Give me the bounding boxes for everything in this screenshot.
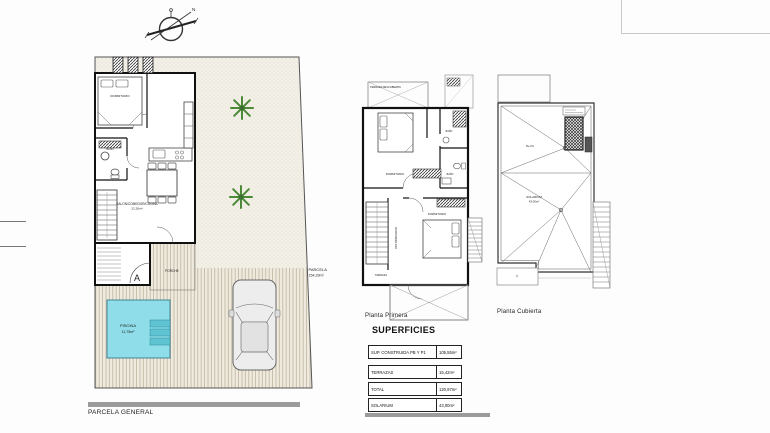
superficies-row: TOTAL 120,97m²: [368, 382, 462, 396]
stairs: [97, 190, 117, 240]
wardrobe: [437, 199, 465, 207]
roof-plan-caption: Planta Cubierta: [497, 309, 541, 315]
margin-tick: [0, 221, 26, 222]
garden-plant: [230, 186, 252, 208]
ground-floor-plan: DORMITORIO BAÑO: [85, 50, 330, 395]
living-room-label: SALON/COMEDOR/COCINA: [116, 202, 158, 206]
table-underline-bar: [365, 413, 490, 417]
superficies-row-value: 15,42m²: [436, 366, 461, 378]
terraza-label: TERRAZA: [375, 273, 387, 277]
bedroom1-label: DORMITORIO: [386, 172, 405, 176]
lower-annex: [497, 268, 538, 285]
chimney: [585, 137, 592, 152]
first-floor-plan: TERRAZA DESCUBIERTA: [353, 70, 498, 325]
stairs: [366, 202, 388, 264]
title-block-frame-line: [621, 33, 770, 34]
dining-table: [147, 163, 177, 203]
hall-label: DISTRIBUIDOR: [394, 226, 398, 248]
superficies-row-value: 120,97m²: [436, 383, 461, 395]
bulkhead-note-box: [563, 107, 585, 115]
margin-tick: [0, 246, 26, 247]
superficies-title: SUPERFICIES: [372, 325, 435, 335]
fence-posts: [113, 57, 153, 73]
solarium-label: SOLARIUM: [526, 195, 542, 199]
pool: [107, 300, 170, 358]
wardrobe: [413, 169, 441, 178]
ground-caption-bar: [88, 402, 300, 407]
compass-north-label: N: [192, 7, 195, 12]
stair-bulkhead: [565, 117, 583, 150]
bedroom-furniture: [98, 77, 142, 125]
superficies-row: SOLARIUM 43,00m²: [368, 398, 462, 412]
superficies-row-label: SOLARIUM: [369, 399, 436, 411]
exterior-stair: [468, 218, 482, 262]
ground-floor-caption: PARCELA GENERAL: [88, 409, 153, 416]
title-block-frame-line: [621, 0, 622, 33]
solarium-area: 43,00m²: [529, 200, 539, 204]
superficies-row-value: 105,55m²: [436, 346, 461, 358]
superficies-row-label: TOTAL: [369, 383, 436, 395]
superficies-row-value: 43,00m²: [436, 399, 461, 411]
superficies-row-label: SUP. CONSTRUIDA PB Y P1: [369, 346, 436, 358]
bedroom-label: DORMITORIO: [110, 94, 130, 98]
bedroom2-label: DORMITORIO: [428, 212, 447, 216]
parked-car: [229, 280, 280, 370]
slope-label: Pte 2%: [526, 145, 535, 148]
compass-north-icon: N: [138, 2, 208, 54]
living-room-area: 21,26m²: [131, 207, 142, 211]
superficies-row-label: TERRAZAS: [369, 366, 436, 378]
roof-plan: Pte 2% SOLARIUM 43,00m²: [488, 60, 633, 320]
bedroom1-bed: [378, 113, 413, 152]
superficies-row: TERRAZAS 15,42m²: [368, 365, 462, 379]
terraza-descubierta-label: TERRAZA DESCUBIERTA: [370, 85, 401, 89]
pool-area: 11,75m²: [122, 330, 136, 334]
porch-deck: [150, 243, 195, 290]
parcel-label: PARCELA: [309, 267, 328, 272]
bedroom2-bed: [423, 220, 461, 258]
service-patio: [445, 75, 473, 108]
section-marker-a: A: [134, 273, 140, 283]
first-floor-caption: Planta Primera: [365, 313, 407, 319]
roof-terrace-opening: [498, 75, 550, 102]
architectural-drawing-sheet: N: [0, 0, 770, 433]
pool-label: PISCINA: [120, 323, 136, 328]
bathroom2-label: BAÑO: [447, 173, 454, 176]
parcel-area: 154,29m²: [309, 274, 325, 278]
exterior-stair: [593, 202, 610, 288]
garden-plant: [231, 97, 253, 119]
door-arc: [408, 285, 422, 299]
superficies-row: SUP. CONSTRUIDA PB Y P1 105,55m²: [368, 345, 462, 359]
bathroom1-label: BAÑO: [446, 130, 453, 133]
porch-label: PORCHE: [165, 269, 179, 273]
